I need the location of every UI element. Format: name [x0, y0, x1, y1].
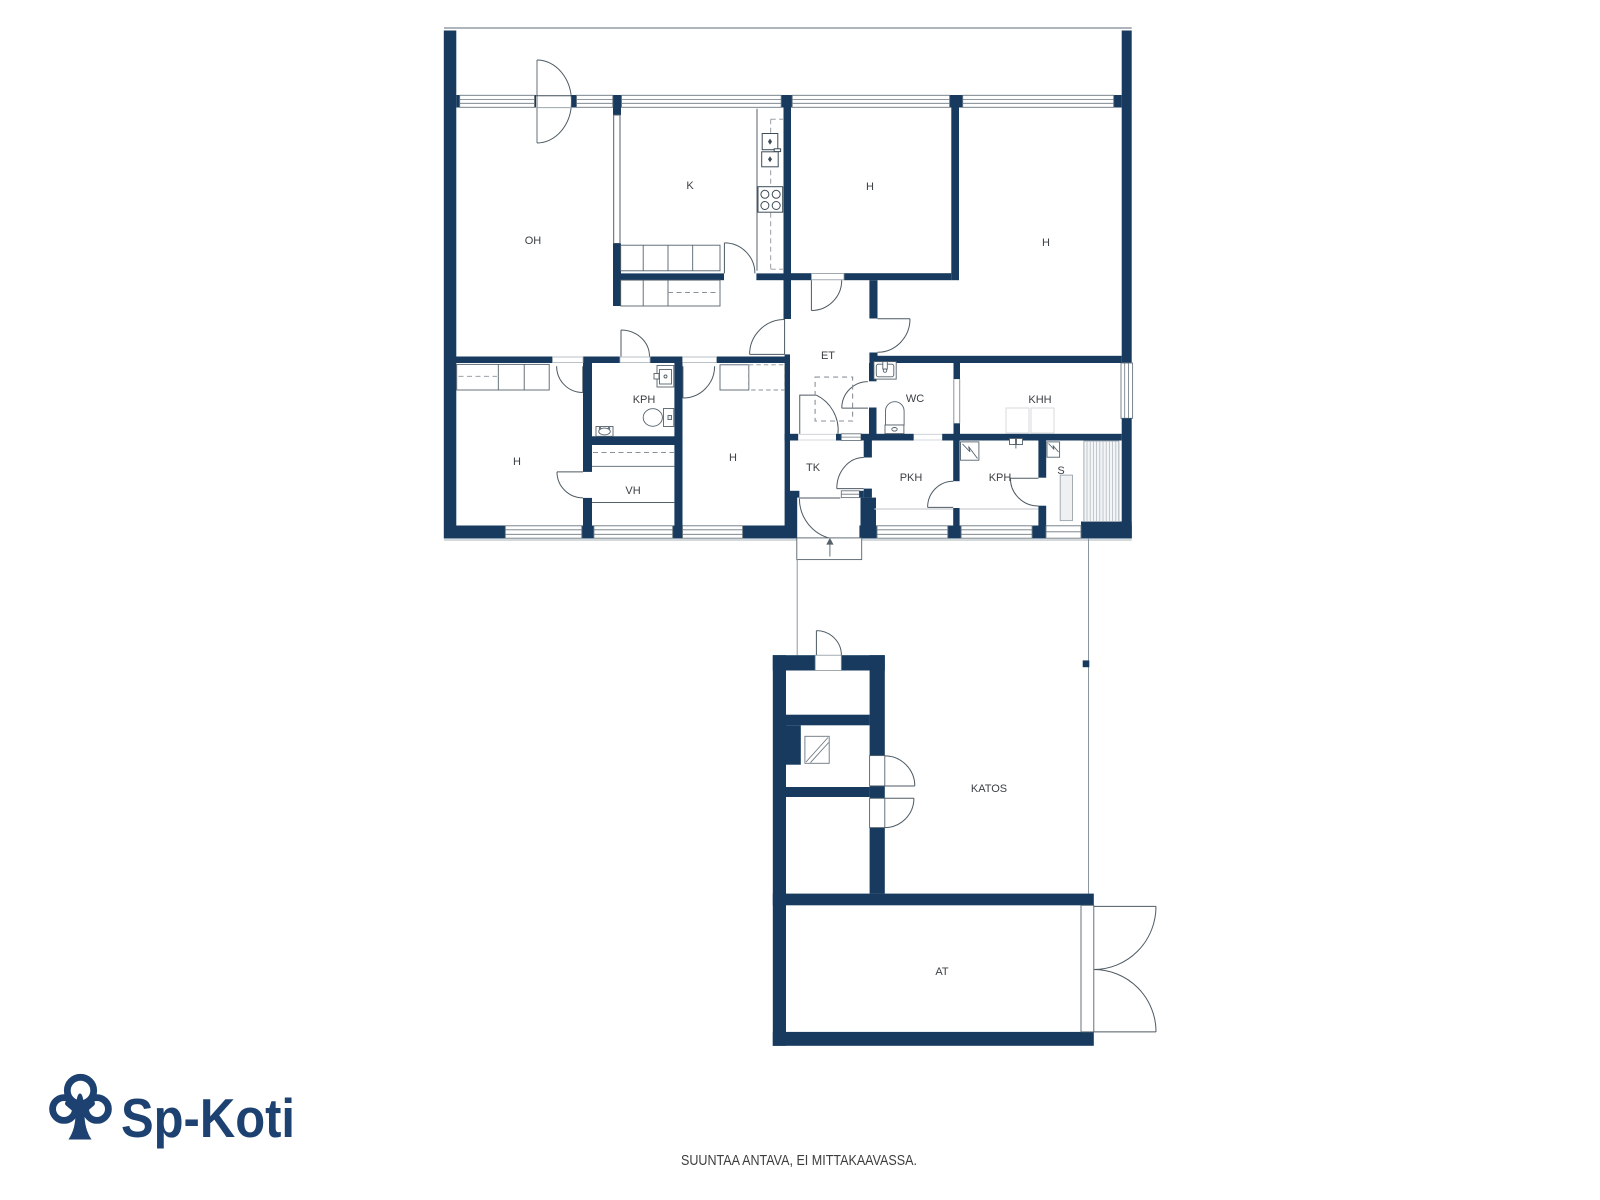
svg-text:VH: VH — [625, 485, 640, 497]
svg-text:Sp-Koti: Sp-Koti — [121, 1087, 295, 1149]
svg-text:KATOS: KATOS — [971, 783, 1007, 795]
svg-text:KPH: KPH — [633, 394, 656, 406]
svg-text:H: H — [513, 456, 521, 468]
svg-text:H: H — [866, 181, 874, 193]
svg-text:SUUNTAA ANTAVA, EI MITTAKAAVAS: SUUNTAA ANTAVA, EI MITTAKAAVASSA. — [681, 1152, 917, 1169]
svg-text:H: H — [1042, 237, 1050, 249]
svg-text:K: K — [686, 180, 694, 192]
svg-text:S: S — [1057, 465, 1064, 477]
svg-text:KHH: KHH — [1028, 394, 1051, 406]
svg-text:TK: TK — [806, 462, 821, 474]
svg-text:AT: AT — [935, 966, 949, 978]
svg-text:PKH: PKH — [900, 472, 923, 484]
svg-text:KPH: KPH — [989, 472, 1012, 484]
svg-text:WC: WC — [906, 393, 924, 405]
svg-text:H: H — [729, 452, 737, 464]
svg-text:ET: ET — [821, 350, 835, 362]
svg-text:OH: OH — [525, 235, 542, 247]
